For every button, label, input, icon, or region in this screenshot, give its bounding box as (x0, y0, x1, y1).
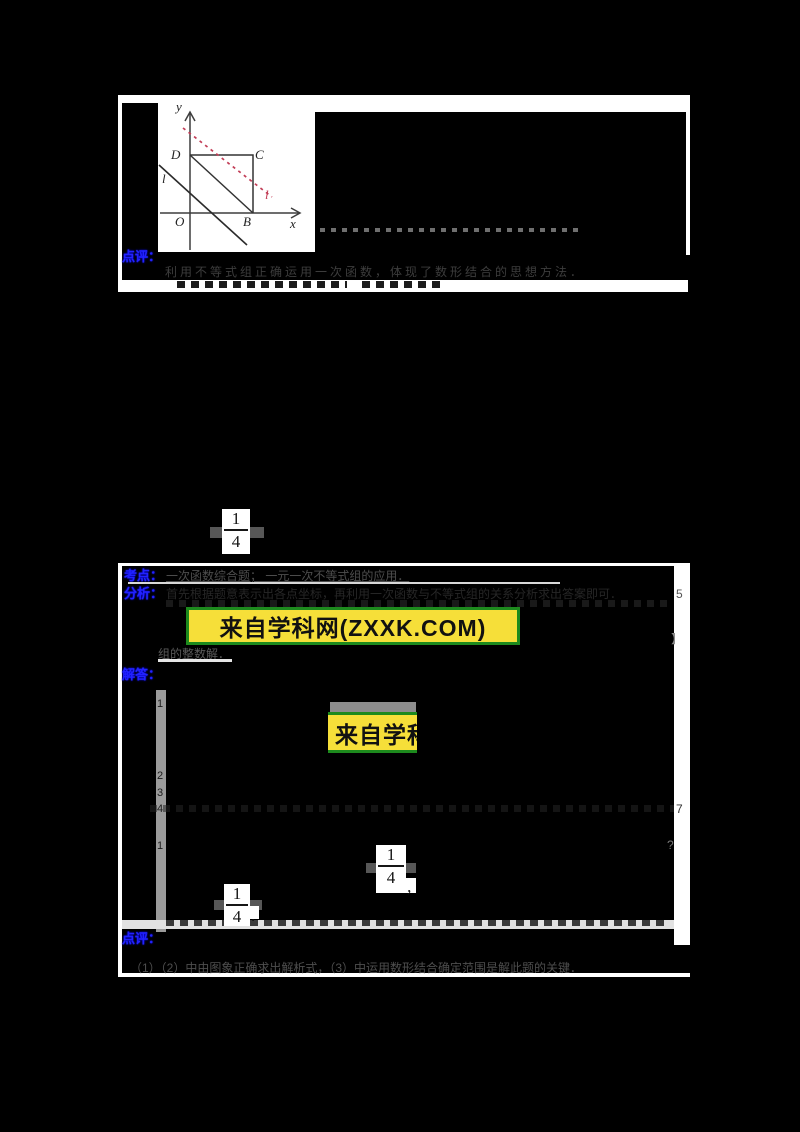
fraction-one-quarter: 1 4 (376, 845, 406, 893)
margin-glyph-bracket: 】 (671, 633, 683, 646)
fraction-one-quarter: 1 4 (224, 884, 250, 926)
lower-panel-bottom-right-black (674, 945, 686, 973)
fraction-bar (378, 865, 404, 867)
dianping-label: 点评： (122, 931, 161, 946)
fraction-numerator: 1 (224, 884, 250, 903)
fenxi-label: 分析： (124, 586, 163, 601)
figure-label-B: B (243, 214, 251, 229)
top-panel-bottom-strip (120, 280, 688, 292)
top-right-black-area (315, 112, 686, 235)
watermark-text-clipped: 来自学科网 (335, 716, 417, 750)
line-l-red-dashed (183, 128, 272, 197)
watermark-text: 来自学科网(ZXXK.COM) (220, 609, 487, 643)
jieda-label: 解答： (122, 667, 161, 682)
illegible-text-row (166, 600, 671, 607)
line-l-black (159, 165, 247, 245)
illegible-text-row (177, 281, 347, 288)
row-underline-strip (128, 582, 560, 584)
figure-label-l-black: l (162, 171, 166, 186)
line-number: 1 (157, 698, 163, 710)
fraction-denominator: 4 (224, 907, 250, 926)
kaodian-label: 考点： (124, 568, 163, 583)
watermark-box-full: 来自学科网(ZXXK.COM) (186, 607, 520, 645)
fraction-numerator: 1 (222, 509, 250, 528)
fraction-numerator: 1 (376, 845, 406, 864)
margin-glyph-question: ? (667, 839, 674, 852)
figure-label-y: y (174, 99, 182, 114)
fraction-suffix: ． (250, 906, 259, 919)
comment-label: 点评： (122, 249, 161, 264)
watermark-box-clipped: 来自学科网 (328, 712, 417, 753)
coordinate-diagram: y x O B D C l l (158, 95, 315, 252)
figure-box: y x O B D C l l (158, 95, 315, 252)
dianping-text: （1）（2）中由图象正确求出解析式，（3）中运用数形结合确定范围是解此题的关键． (130, 961, 600, 975)
fraction-bar (224, 529, 248, 531)
line-number: 3 (157, 787, 163, 799)
line-number: 1 (157, 840, 163, 852)
top-panel-right-border (686, 95, 690, 255)
gray-dotted-strip (320, 228, 582, 232)
diagonal-DB (190, 155, 253, 213)
row-underline-strip (158, 659, 232, 662)
fraction-suffix: ， (406, 878, 416, 893)
watermark-gray-cap (330, 702, 416, 712)
fraction-denominator: 4 (376, 868, 406, 887)
kaodian-text: 一次函数综合题； 一元一次不等式组的应用． (166, 569, 566, 583)
fraction-denominator: 4 (222, 532, 250, 551)
margin-glyph-7: 7 (676, 803, 683, 816)
document-page: 故选：D． y x O B D C l l (0, 0, 800, 1132)
figure-label-l-red: l (265, 187, 269, 202)
figure-label-C: C (255, 147, 264, 162)
figure-label-x: x (289, 216, 296, 231)
line-number: 2 (157, 770, 163, 782)
illegible-text-row (362, 281, 444, 288)
fraction-one-quarter: 1 4 (222, 509, 250, 554)
fraction-bar (226, 904, 248, 906)
comment-text-line: 利用不等式组正确运用一次函数，体现了数形结合的思想方法． (165, 265, 610, 280)
figure-label-D: D (170, 147, 181, 162)
lower-panel-right-margin (674, 563, 690, 945)
margin-glyph-5: 5 (676, 588, 683, 601)
top-left-black-bar (122, 103, 158, 238)
highlight-strip (122, 920, 674, 929)
fenxi-text: 首先根据题意表示出各点坐标，再利用一次函数与不等式组的关系分析求出答案即可． (166, 587, 671, 601)
figure-label-O: O (175, 214, 185, 229)
illegible-text-row (150, 805, 674, 812)
